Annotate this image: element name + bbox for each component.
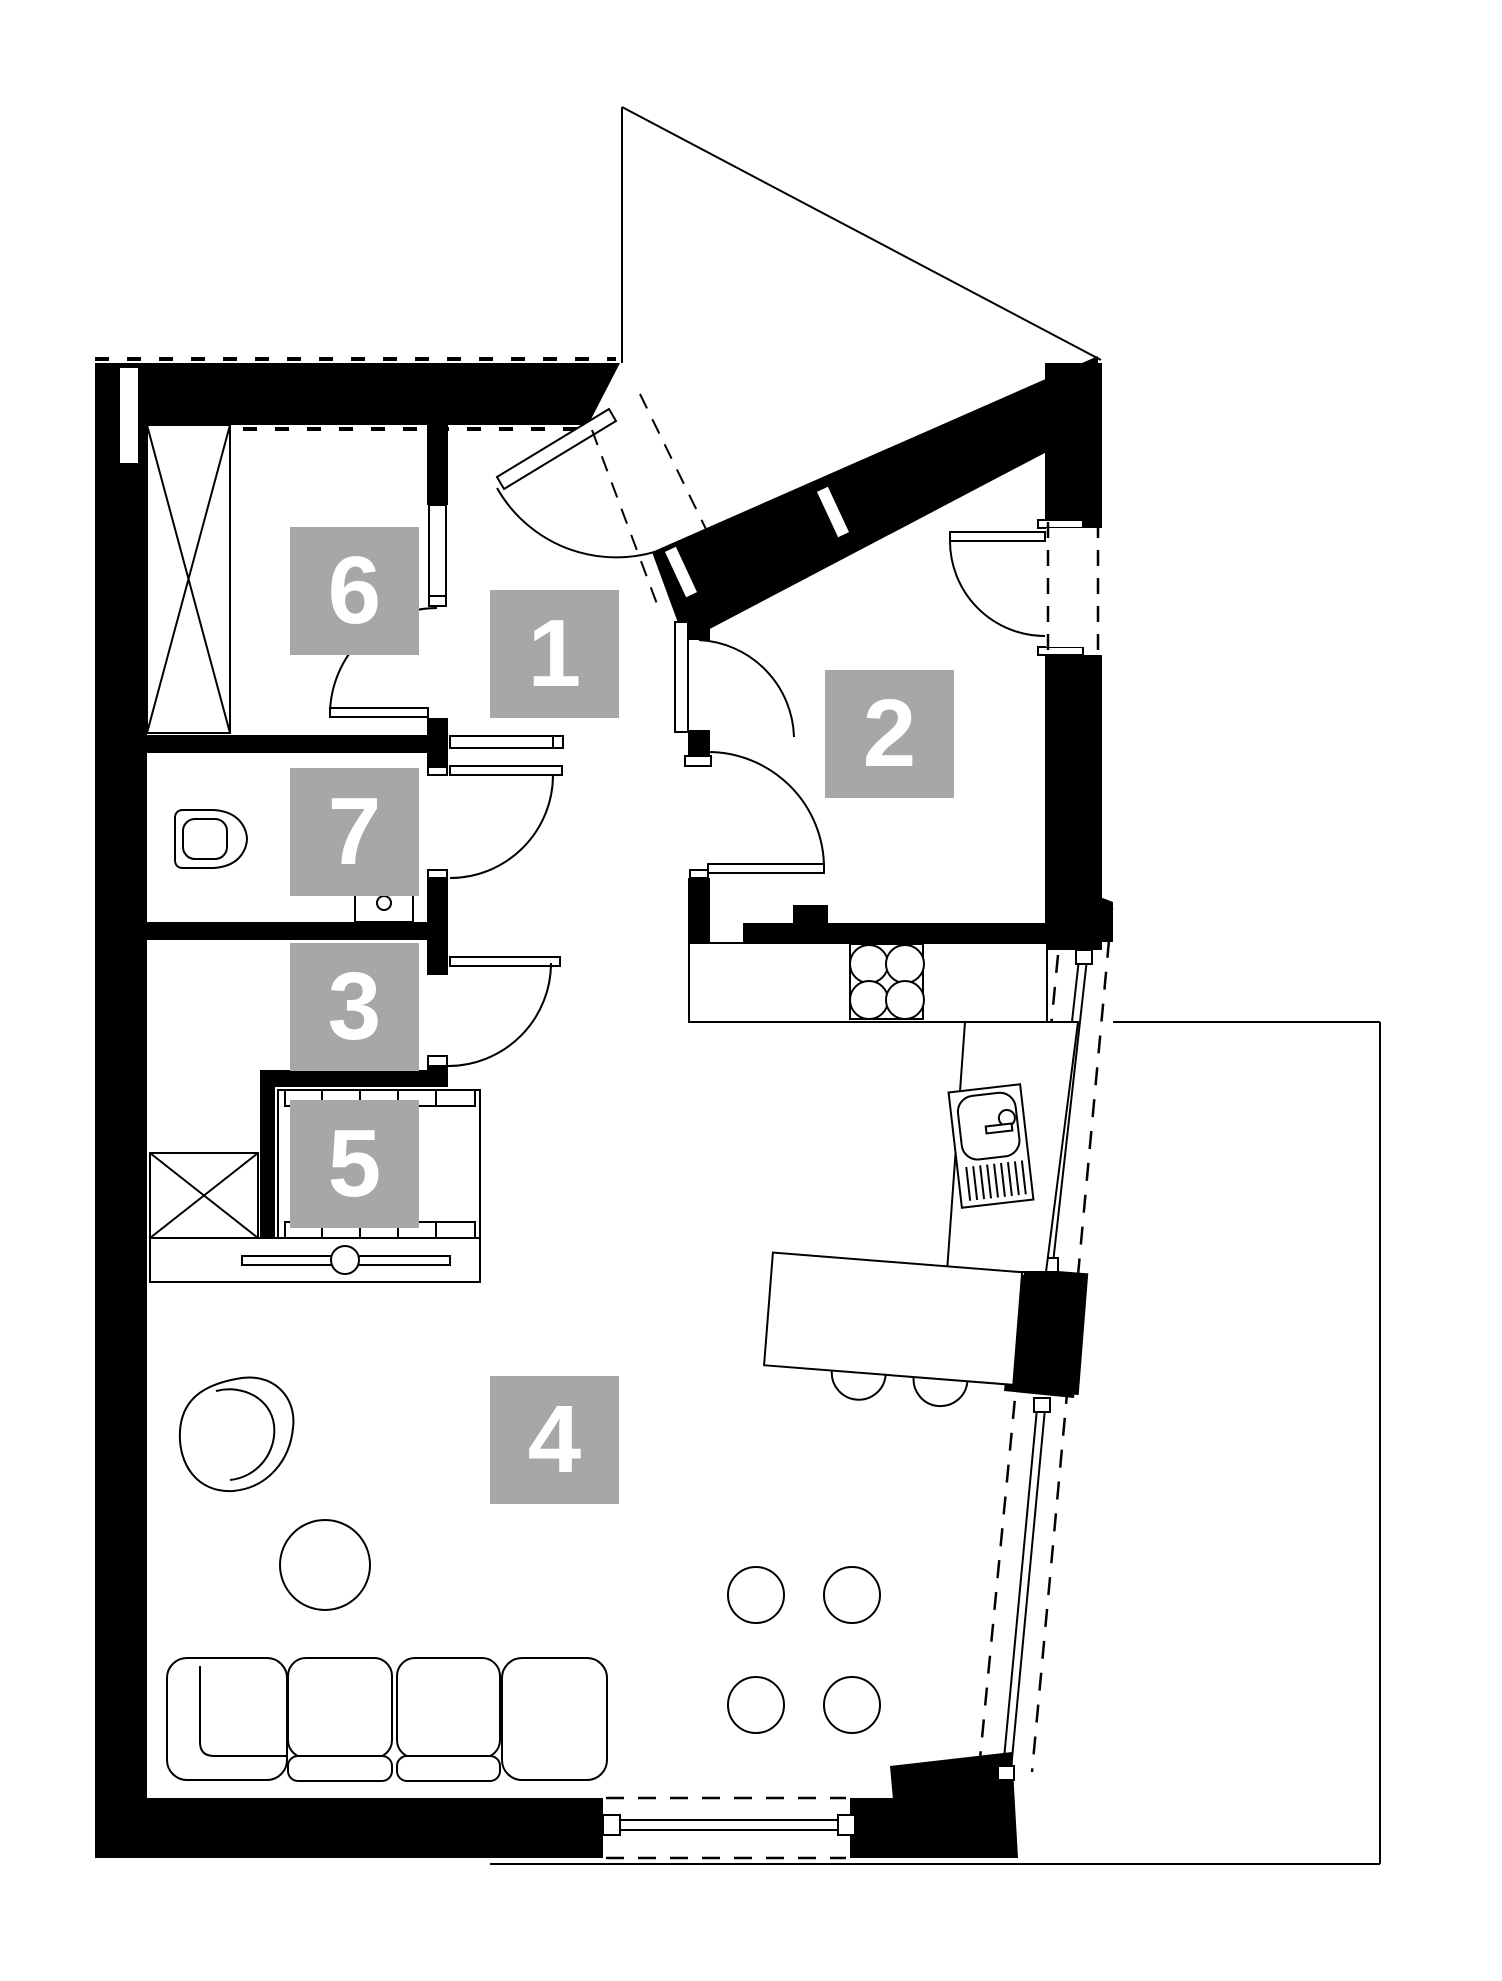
terrace-outline [490,1022,1380,1864]
room-label-1: 1 [490,590,619,718]
wall-partition-stub [427,718,448,767]
sideboard [150,1238,480,1282]
stove-4-burners [850,944,924,1019]
toilet [175,810,247,868]
floor-plan-drawing [0,0,1502,1981]
kitchen-island [762,1253,1022,1412]
frame-toilet-door-bottom [428,870,447,878]
wall-top [95,363,620,425]
frame-toilet-door-top [428,767,447,775]
entry-door [497,409,683,557]
wall-left [95,363,147,1858]
wardrobe-cross [147,425,230,733]
poufs [728,1567,880,1733]
glazed-partition [429,505,446,602]
washbasin [355,894,413,922]
floor-plan: 1 2 3 4 5 6 7 [0,0,1502,1981]
wall-diagonal [652,356,1098,642]
room-label-2: 2 [825,670,954,798]
bar-stool [830,1371,886,1402]
glazed-partition-cap [429,596,446,606]
room-label-6: 6 [290,527,419,655]
frame-kitchen-door [690,870,708,878]
wall-slot-top-left [119,367,139,464]
window-room2 [1046,522,1101,655]
door-toilet [450,766,562,878]
frame-window-room2-top [1038,520,1083,528]
frame-window-room2-bottom [1038,647,1083,655]
wall-hall-pier-kitchen [688,878,710,942]
terrace-triangle-outline [622,107,1101,363]
room-label-4: 4 [490,1376,619,1504]
wall-corridor3-upper [427,940,448,975]
sliding-door [603,1798,855,1858]
bar-stool [911,1377,967,1408]
wall-room5-left [260,1070,275,1238]
wall-hall-pier-upper [688,596,710,640]
round-table [280,1520,370,1610]
shaft-cross [150,1153,258,1238]
wall-bottom [95,1798,603,1858]
door-leaf-parked [450,736,563,748]
wall-toilet-bottom [147,922,448,940]
door-kitchen [708,752,824,873]
armchair [180,1377,294,1491]
wall-room5-top [260,1070,448,1087]
frame-hall-pier [685,756,711,766]
sofa [167,1658,607,1781]
room-label-7: 7 [290,768,419,896]
chimney-stub [793,905,828,923]
wall-partition-61 [427,425,448,505]
room-label-5: 5 [290,1100,419,1228]
wall-room2-bottom [743,923,1047,942]
door-room2-terrace [950,532,1045,636]
frame-corridor3-door [428,1056,447,1066]
wall-right-upper [1045,363,1102,528]
wall-toilet-top [147,735,427,753]
door-corridor3 [448,957,560,1066]
room-label-3: 3 [290,943,419,1071]
kitchen-sink [949,1084,1034,1208]
